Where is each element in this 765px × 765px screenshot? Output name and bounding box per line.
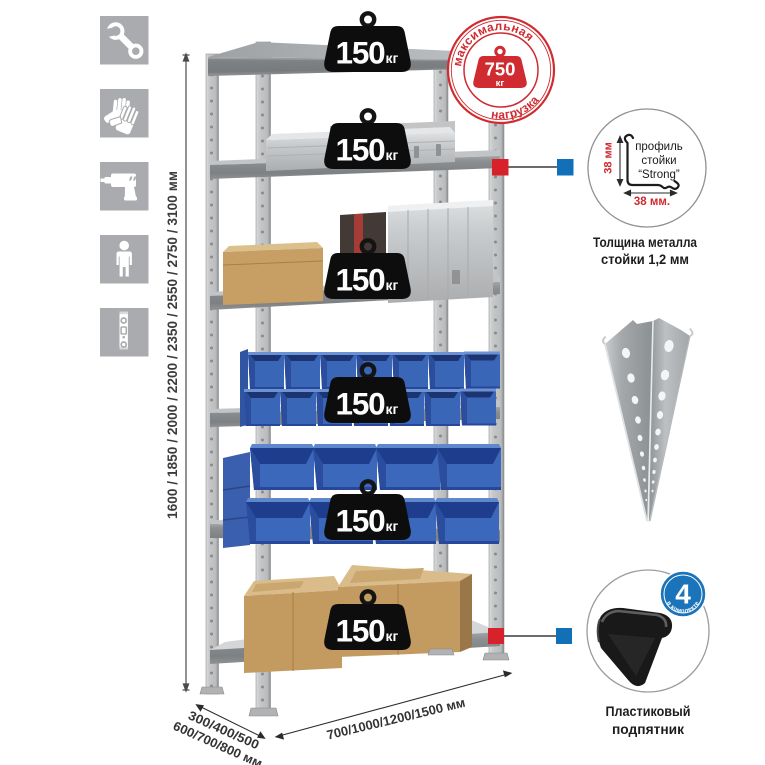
svg-text:кг: кг: [496, 78, 505, 89]
svg-text:стойки: стойки: [641, 155, 676, 167]
svg-text:38 мм: 38 мм: [603, 142, 615, 174]
svg-text:подпятник: подпятник: [612, 721, 685, 737]
svg-text:4: 4: [675, 579, 691, 610]
svg-text:Пластиковый: Пластиковый: [606, 703, 691, 719]
svg-text:700/1000/1200/1500 мм: 700/1000/1200/1500 мм: [325, 695, 467, 743]
svg-text:Толщина металла: Толщина металла: [593, 234, 697, 250]
svg-text:750: 750: [485, 59, 516, 80]
svg-text:“Strong”: “Strong”: [638, 169, 680, 181]
svg-text:1600 / 1850 / 2000 / 2200 / 23: 1600 / 1850 / 2000 / 2200 / 2350 / 2550 …: [165, 171, 180, 519]
svg-text:стойки 1,2 мм: стойки 1,2 мм: [601, 251, 689, 267]
svg-text:38 мм.: 38 мм.: [634, 196, 670, 208]
svg-text:профиль: профиль: [635, 141, 683, 153]
